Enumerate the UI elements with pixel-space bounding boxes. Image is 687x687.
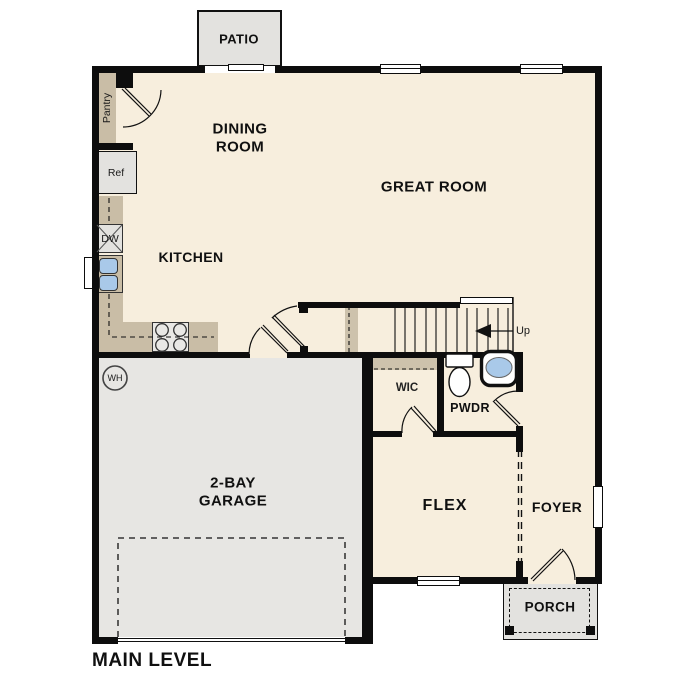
fixture-label-ref: Ref xyxy=(108,167,124,179)
powder-door xyxy=(493,391,520,426)
fixture-label-dw: DW xyxy=(101,233,119,245)
room-label-foyer: FOYER xyxy=(532,499,582,515)
plan-title: MAIN LEVEL xyxy=(92,650,212,672)
room-label-patio: PATIO xyxy=(219,32,259,47)
front-door xyxy=(531,549,575,581)
room-label-great-room: GREAT ROOM xyxy=(381,179,487,196)
room-label-garage-line1: 2-BAY xyxy=(210,475,256,492)
flex-foyer-cased-opening xyxy=(519,450,522,562)
counter-dashes xyxy=(109,198,214,337)
room-label-pwdr: PWDR xyxy=(450,401,490,415)
garage-door-track-dashed xyxy=(118,538,345,637)
room-label-wic: WIC xyxy=(396,382,418,394)
wic-door xyxy=(402,406,436,433)
powder-sink-icon xyxy=(482,352,517,386)
stairs-up-arrow-icon xyxy=(475,324,513,338)
room-label-dining-line2: ROOM xyxy=(216,139,264,156)
room-label-garage-line2: GARAGE xyxy=(199,493,267,510)
misc-dashes xyxy=(349,306,437,369)
garage-entry-door xyxy=(249,325,288,354)
room-label-flex: FLEX xyxy=(423,497,468,515)
room-label-porch: PORCH xyxy=(525,600,576,615)
pantry-door xyxy=(122,88,161,127)
floor-plan: PATIO DINING ROOM GREAT ROOM KITCHEN Pan… xyxy=(0,0,687,687)
fixture-label-pantry: Pantry xyxy=(101,93,113,123)
room-label-dining-line1: DINING xyxy=(213,121,268,138)
room-label-kitchen: KITCHEN xyxy=(158,249,223,265)
stair-treads xyxy=(395,297,513,352)
fixture-label-wh: WH xyxy=(108,373,123,383)
stairs-up-label: Up xyxy=(516,325,530,337)
toilet-icon xyxy=(446,354,473,397)
